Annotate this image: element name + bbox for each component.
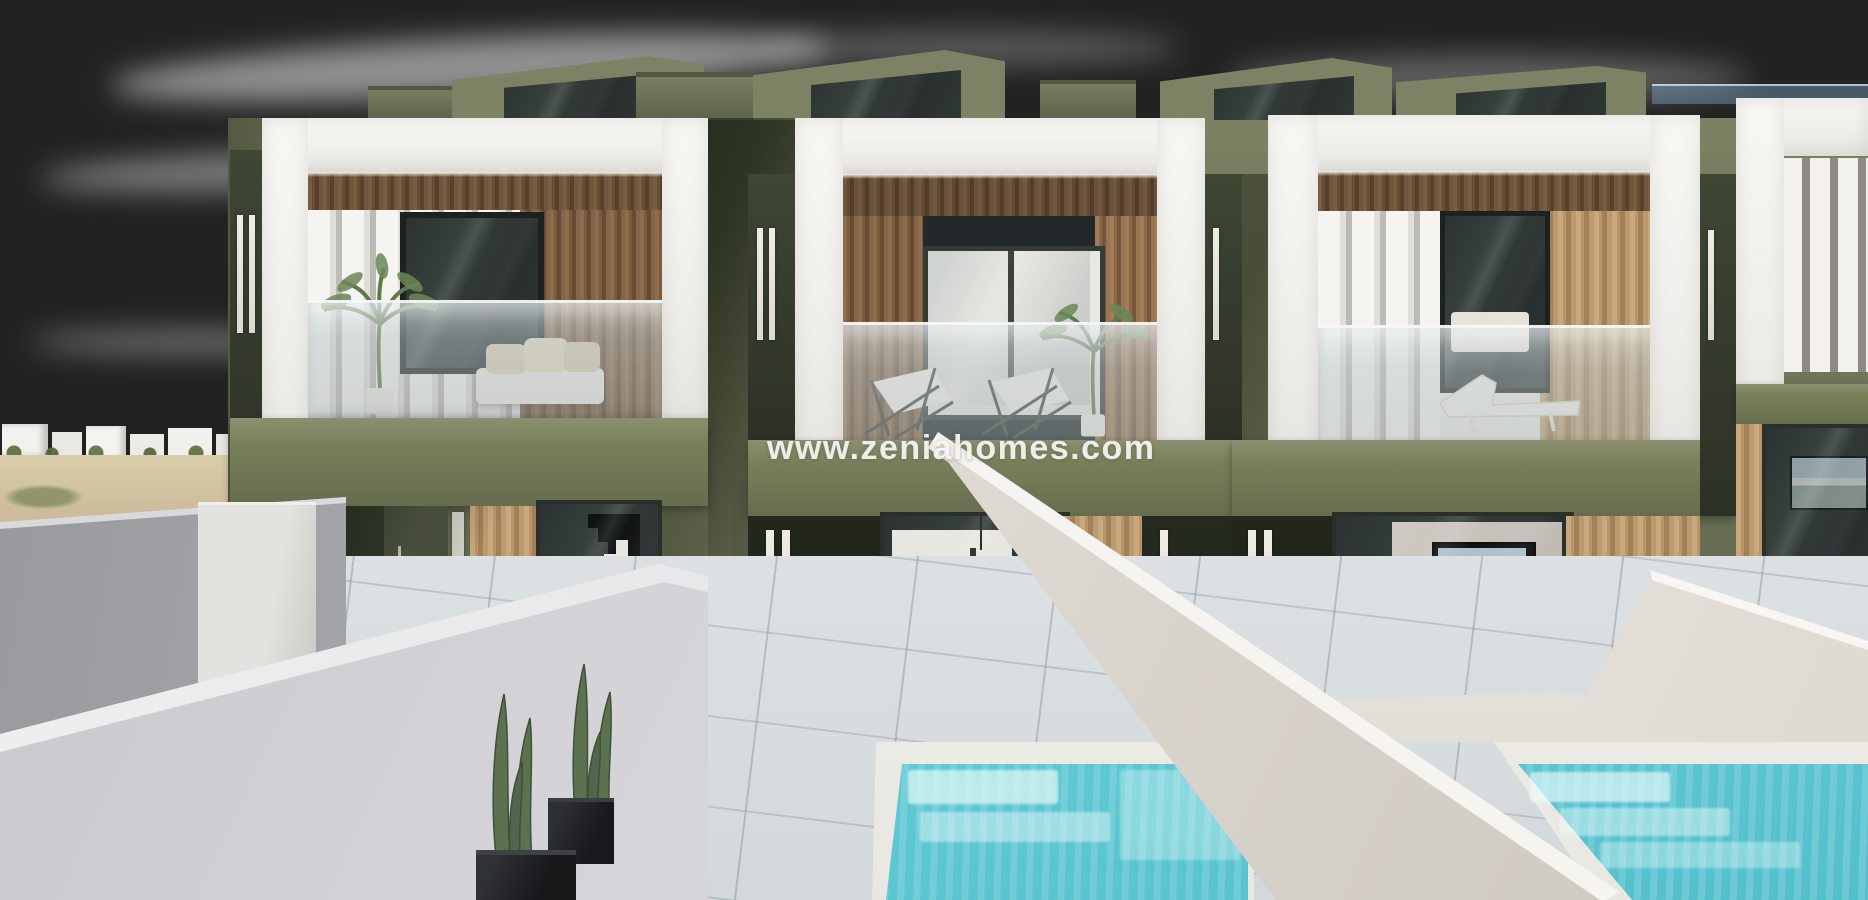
house2-frame-top (795, 118, 1205, 174)
roof-bulkhead (368, 86, 462, 120)
house1-wing-louver (249, 215, 255, 333)
pool-step (1530, 772, 1670, 802)
house4-louver-columns (1782, 158, 1868, 372)
house4-slab-band (1736, 384, 1868, 424)
house4-wing-louver (1708, 230, 1714, 340)
house1-glass-balustrade (308, 300, 662, 421)
roof-bulkhead-glass (1214, 76, 1354, 120)
house2-wing-louver (1213, 228, 1219, 340)
house4-side-wing (1700, 174, 1736, 516)
house1-balcony-opening (308, 172, 662, 418)
roof-bulkhead-glass (811, 70, 961, 120)
house3-frame-left (1268, 115, 1318, 470)
house3-slab-band (1232, 440, 1736, 516)
house3-balcony-ceiling (1318, 171, 1650, 211)
house1-wing-louver (237, 215, 243, 333)
house2-wing-louver (769, 228, 775, 340)
house3-frame-right (1650, 115, 1700, 470)
roof-bulkhead (636, 72, 756, 120)
house2-frame-left (795, 118, 843, 470)
house2-balcony-ceiling (843, 174, 1157, 216)
roof-bulkhead-glass (504, 74, 654, 120)
house1-balcony-ceiling (308, 172, 662, 210)
pool-step (1600, 842, 1800, 868)
house3-balcony-opening (1318, 171, 1650, 470)
ceiling-led-strip (843, 174, 1157, 179)
house2-frame-right (1157, 118, 1205, 470)
house1-frame-top (262, 118, 708, 172)
pool-step (908, 770, 1058, 804)
cactus-planter (476, 850, 576, 900)
house2-balcony-opening (843, 174, 1157, 470)
architectural-render: www.zeniahomes.com (0, 0, 1868, 900)
house2-side-wing (1205, 174, 1242, 440)
house1-frame-right (662, 118, 708, 420)
glass-tv-reflection (1790, 456, 1868, 510)
ceiling-led-strip (1318, 171, 1650, 176)
ceiling-led-strip (308, 172, 662, 177)
roof-bulkhead (1040, 80, 1136, 120)
house3-frame-top (1268, 115, 1700, 171)
house2-wing-louver (757, 228, 763, 340)
house1-slab-band (230, 418, 708, 506)
pool-step (920, 812, 1110, 842)
pool-step (1560, 808, 1730, 836)
watermark: www.zeniahomes.com (767, 429, 1103, 468)
